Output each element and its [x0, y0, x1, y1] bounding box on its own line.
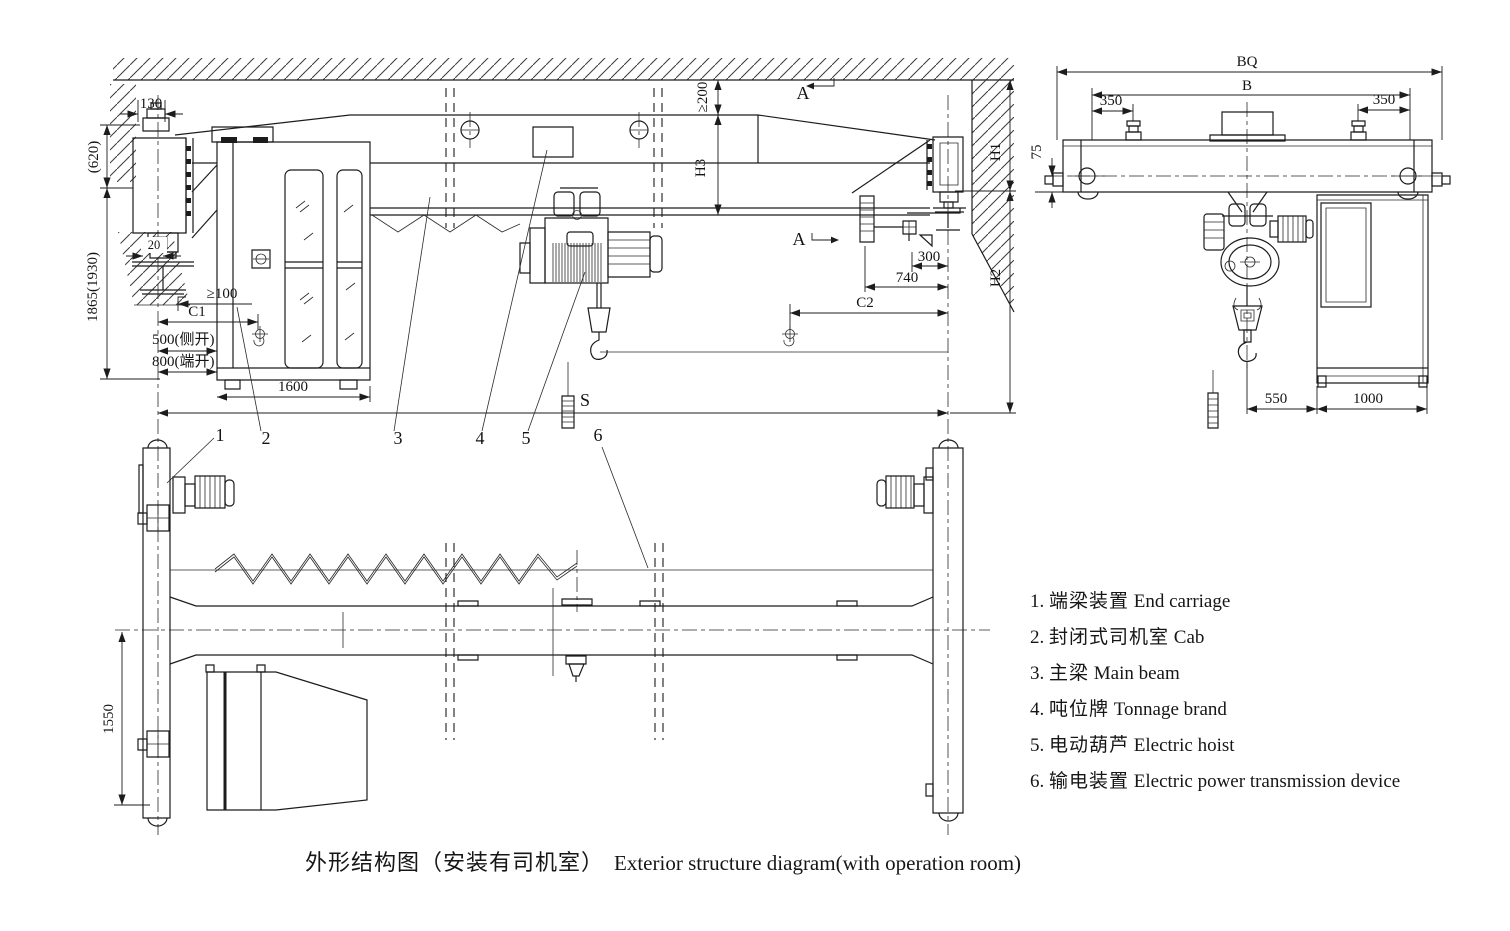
- hook-position-markers: [252, 326, 798, 346]
- legend-en-5: Electric hoist: [1134, 735, 1235, 756]
- dim-350-left: 350: [1100, 93, 1123, 109]
- legend-zh-1: 端梁装置: [1049, 591, 1129, 612]
- dim-130: 130: [140, 96, 163, 112]
- legend-en-4: Tonnage brand: [1114, 699, 1227, 720]
- festoon-collector-elevation: [562, 362, 574, 428]
- end-carriage-right-plan: [926, 440, 963, 821]
- glass-marks: [296, 201, 355, 342]
- legend-en-1: End carriage: [1134, 591, 1231, 612]
- dim-1600: 1600: [278, 379, 308, 395]
- legend-item-4: 4. 吨位牌 Tonnage brand: [1030, 692, 1490, 728]
- dim-740: 740: [896, 270, 919, 286]
- legend-item-2: 2. 封闭式司机室 Cab: [1030, 620, 1490, 656]
- dim-20: 20: [148, 238, 161, 252]
- callout-2: 2: [262, 428, 271, 448]
- callout-6: 6: [594, 425, 603, 445]
- hoist-side: [1204, 192, 1313, 361]
- main-beam-elevation: [175, 88, 948, 352]
- legend-item-3: 3. 主梁 Main beam: [1030, 656, 1490, 692]
- dim-S: S: [580, 390, 590, 410]
- dim-800: 800(端开): [152, 353, 215, 370]
- dim-1550: 1550: [101, 704, 117, 734]
- callout-4: 4: [476, 428, 485, 448]
- crane-exterior-structure-drawing: 130 (620) 1865(1930) 20 ≥100 C1 500(侧开) …: [0, 0, 1510, 931]
- current-collector-plan: [566, 656, 586, 664]
- tonnage-plate: [533, 127, 573, 157]
- legend-zh-5: 电动葫芦: [1049, 735, 1129, 756]
- dim-BQ: BQ: [1237, 54, 1258, 70]
- legend-num-3: 3.: [1030, 663, 1044, 684]
- dim-1865: 1865(1930): [85, 252, 101, 322]
- legend: 1. 端梁装置 End carriage 2. 封闭式司机室 Cab 3. 主梁…: [1030, 584, 1490, 800]
- dim-300: 300: [918, 249, 941, 265]
- drawing-title: 外形结构图（安装有司机室）Exterior structure diagram(…: [305, 845, 1205, 877]
- end-carriage-right-elevation: [927, 137, 966, 230]
- legend-zh-6: 输电装置: [1049, 771, 1129, 792]
- end-carriage-left-plan: [138, 440, 170, 826]
- hook: [591, 332, 607, 359]
- drawing-title-en: Exterior structure diagram(with operatio…: [614, 851, 1021, 875]
- dim-H3: H3: [693, 159, 709, 177]
- dim-75: 75: [1029, 145, 1045, 160]
- dim-620: (620): [86, 141, 102, 174]
- hook-block: [588, 308, 610, 332]
- power-feed-bracket: [860, 196, 960, 246]
- legend-en-6: Electric power transmission device: [1134, 771, 1400, 792]
- dim-ge200: ≥200: [695, 82, 711, 113]
- plan-view: 1550: [101, 440, 963, 826]
- drawing-title-zh: 外形结构图（安装有司机室）: [305, 850, 604, 875]
- cab-elevation: [212, 127, 370, 389]
- legend-num-5: 5.: [1030, 735, 1044, 756]
- travel-motor-right: [877, 476, 933, 513]
- cab-plan: [206, 665, 367, 810]
- dim-C2: C2: [856, 295, 874, 311]
- festoon-wire-plan: [170, 554, 933, 682]
- dim-B: B: [1242, 78, 1252, 94]
- end-beam-side: [1063, 140, 1432, 192]
- legend-en-2: Cab: [1174, 627, 1205, 648]
- legend-en-3: Main beam: [1094, 663, 1180, 684]
- dim-C1: C1: [188, 304, 206, 320]
- legend-zh-3: 主梁: [1049, 663, 1089, 684]
- legend-item-5: 5. 电动葫芦 Electric hoist: [1030, 728, 1490, 764]
- legend-zh-2: 封闭式司机室: [1049, 627, 1169, 648]
- dim-1000: 1000: [1353, 391, 1383, 407]
- main-beam-plan: [170, 543, 933, 740]
- callouts: 1 2 3 4 5 6: [167, 150, 648, 568]
- dim-ge100: ≥100: [207, 286, 238, 302]
- legend-num-1: 1.: [1030, 591, 1044, 612]
- hoist-drum-ribs: [553, 243, 601, 282]
- travel-motor-left: [173, 476, 234, 513]
- legend-item-1: 1. 端梁装置 End carriage: [1030, 584, 1490, 620]
- pedestal: [1222, 112, 1273, 135]
- hoist-motor: [608, 232, 650, 277]
- electric-hoist-elevation: [520, 188, 662, 359]
- legend-zh-4: 吨位牌: [1049, 699, 1109, 720]
- dim-H1: H1: [988, 143, 1004, 161]
- callout-3: 3: [394, 428, 403, 448]
- suspension-bolt-left: [461, 112, 479, 148]
- dim-500: 500(侧开): [152, 331, 215, 348]
- callout-1: 1: [216, 425, 225, 445]
- section-a-mid: A: [793, 229, 806, 249]
- dim-550: 550: [1265, 391, 1288, 407]
- cab-window-left: [285, 170, 323, 368]
- cab-side: [1317, 195, 1428, 387]
- legend-num-2: 2.: [1030, 627, 1044, 648]
- suspension-bolts-side: [1126, 121, 1366, 140]
- legend-num-6: 6.: [1030, 771, 1044, 792]
- legend-item-6: 6. 输电装置 Electric power transmission devi…: [1030, 764, 1490, 800]
- cab-side-window: [1321, 203, 1371, 307]
- dim-H2: H2: [988, 269, 1004, 287]
- callout-5: 5: [522, 428, 531, 448]
- suspension-bolt-right: [630, 112, 648, 148]
- legend-num-4: 4.: [1030, 699, 1044, 720]
- dim-350-right: 350: [1373, 92, 1396, 108]
- side-view: BQ B 350 350 75 550 1000: [1029, 54, 1450, 428]
- side-view-dimensions: BQ B 350 350 75 550 1000: [1029, 54, 1442, 414]
- cab-window-right: [337, 170, 362, 368]
- elevation-dimensions: 130 (620) 1865(1930) 20 ≥100 C1 500(侧开) …: [85, 78, 1016, 413]
- collector-side: [1208, 370, 1218, 428]
